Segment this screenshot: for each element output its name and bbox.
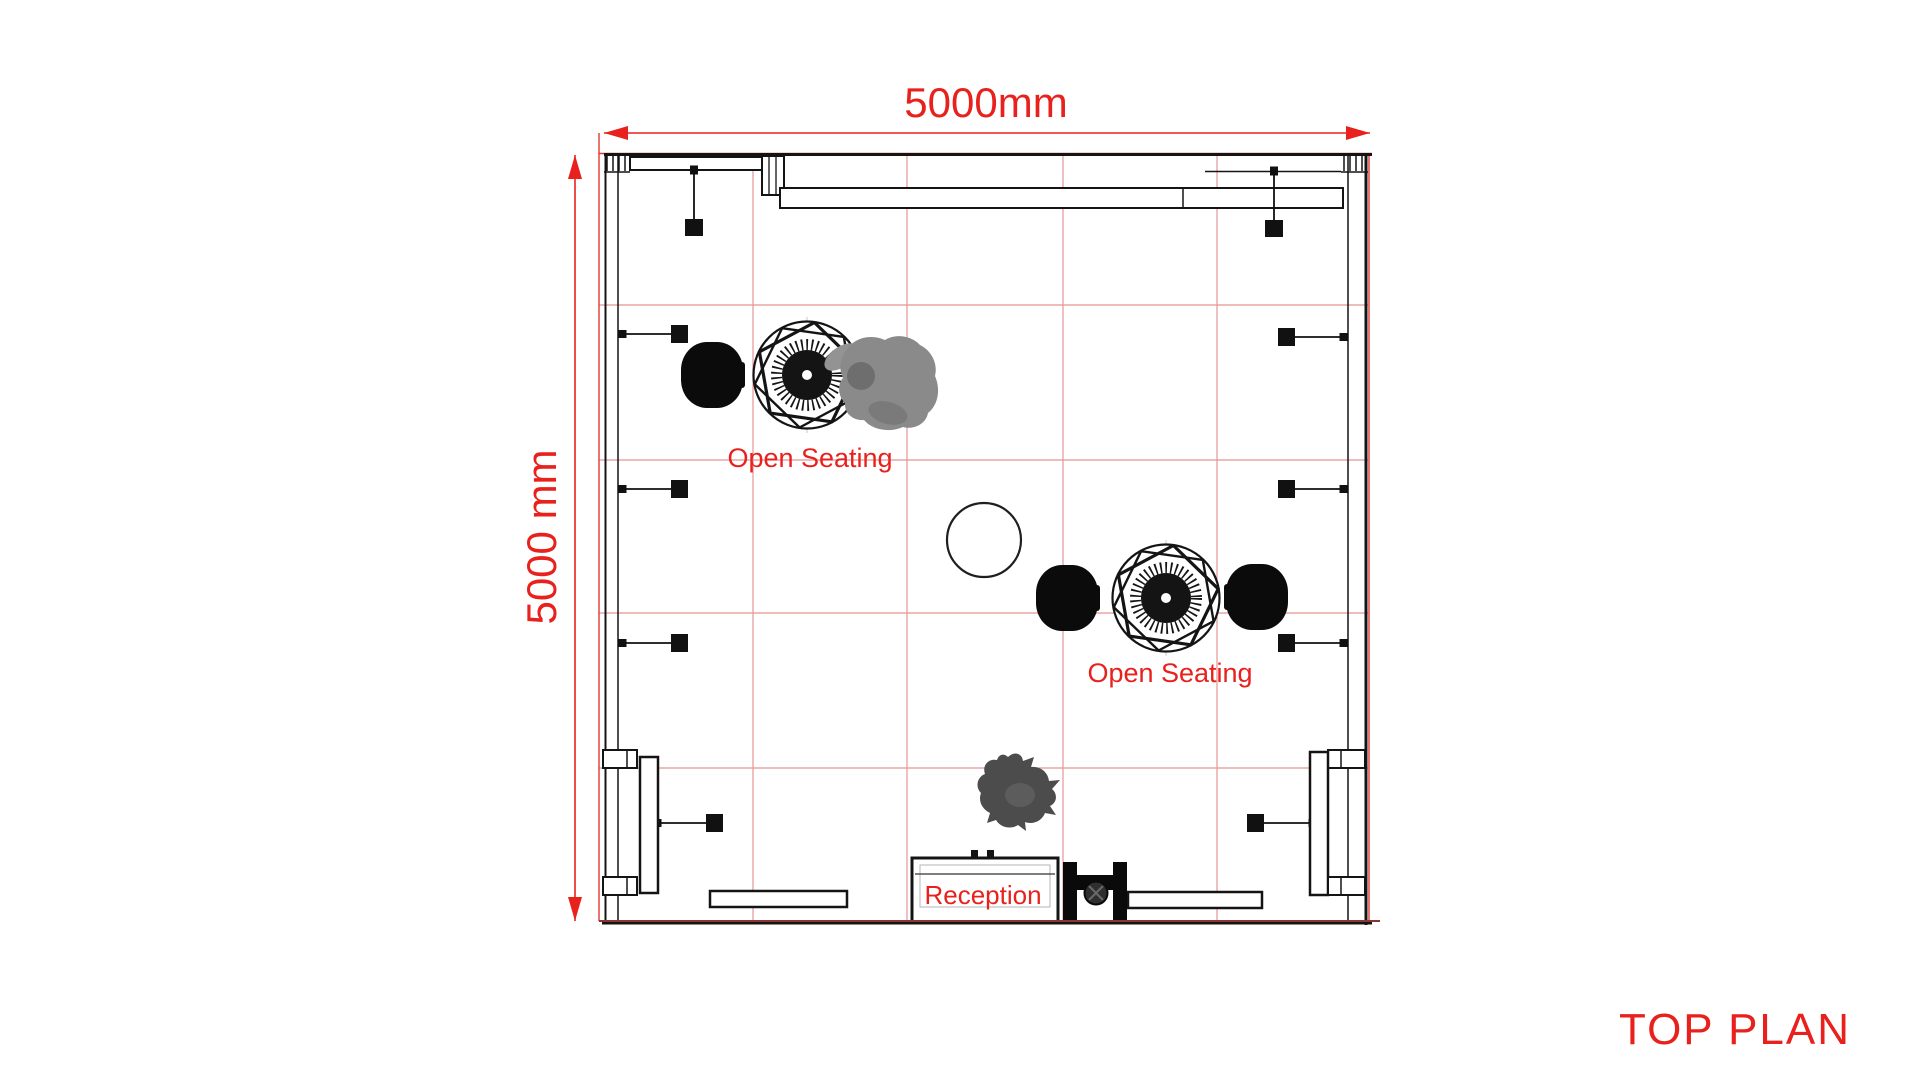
open-seating-label-2: Open Seating xyxy=(1087,658,1252,688)
open-seating-label-1: Open Seating xyxy=(727,443,892,473)
spotlight-fixture-icon xyxy=(1278,328,1349,346)
view-title: TOP PLAN xyxy=(1619,1005,1851,1054)
dimension-top: 5000mm xyxy=(604,79,1370,140)
spotlights xyxy=(618,166,1349,833)
top-plan-drawing: 5000mm 5000 mm Open Seating Open Seating… xyxy=(0,0,1920,1080)
display-panel-left xyxy=(603,750,658,895)
arrow-up-icon xyxy=(568,155,582,179)
arrow-down-icon xyxy=(568,897,582,921)
spotlight-fixture-icon xyxy=(653,814,724,832)
bench-icon xyxy=(1128,892,1262,908)
round-patterned-table-icon xyxy=(1113,540,1220,656)
spotlight-fixture-icon xyxy=(618,480,689,498)
wall-hatch-top-right xyxy=(1341,156,1368,172)
floor-plan-canvas: 5000mm 5000 mm Open Seating Open Seating… xyxy=(0,0,1920,1080)
spotlight-fixture-icon xyxy=(1278,634,1349,652)
standing-person-figure xyxy=(978,754,1060,831)
arrow-left-icon xyxy=(604,126,628,140)
spotlight-fixture-icon xyxy=(1247,814,1318,832)
spotlight-fixture-icon xyxy=(685,166,703,237)
display-panel-right xyxy=(1310,750,1365,895)
open-seating-area-2 xyxy=(1036,540,1288,656)
lounge-chair-icon xyxy=(681,342,745,408)
spotlight-fixture-icon xyxy=(618,325,689,343)
spotlight-fixture-icon xyxy=(1278,480,1349,498)
bench-icon xyxy=(710,891,847,907)
lounge-chair-icon xyxy=(1036,565,1100,631)
dimension-left: 5000 mm xyxy=(518,155,582,921)
top-beam-long xyxy=(780,188,1343,208)
dimension-width-label: 5000mm xyxy=(904,79,1067,126)
open-seating-area-1 xyxy=(681,317,938,433)
round-rug-icon xyxy=(947,503,1021,577)
reception-label: Reception xyxy=(924,880,1041,910)
lounge-chair-icon xyxy=(1224,564,1288,630)
dimension-depth-label: 5000 mm xyxy=(518,449,565,624)
spotlight-fixture-icon xyxy=(618,634,689,652)
arrow-right-icon xyxy=(1346,126,1370,140)
wall-hatch-top-left xyxy=(604,156,630,172)
coat-stand-icon xyxy=(1063,862,1127,922)
